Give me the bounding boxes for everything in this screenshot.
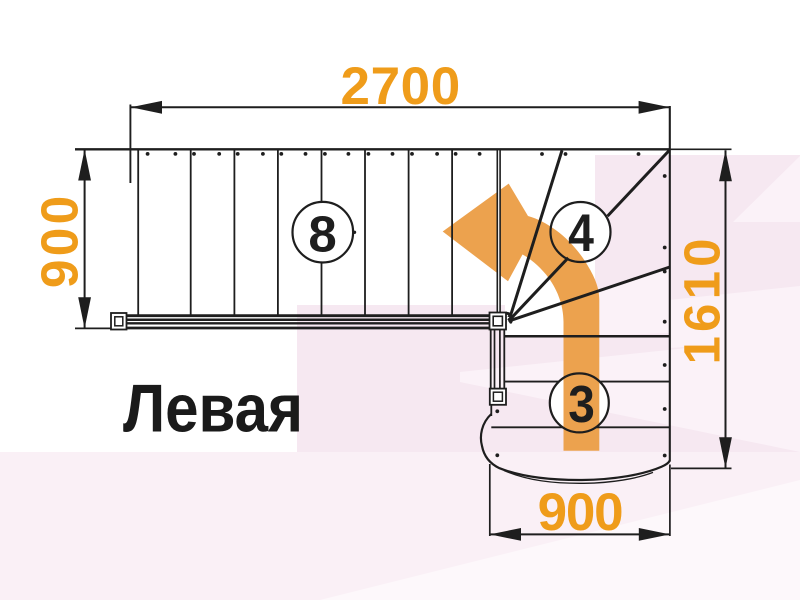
svg-text:2700: 2700 (341, 57, 461, 116)
svg-text:1610: 1610 (674, 234, 731, 364)
svg-text:Левая: Левая (123, 370, 303, 446)
svg-text:900: 900 (31, 193, 89, 289)
svg-text:8: 8 (308, 206, 336, 263)
svg-text:900: 900 (538, 483, 623, 542)
svg-text:3: 3 (568, 375, 595, 433)
svg-text:4: 4 (568, 203, 594, 263)
